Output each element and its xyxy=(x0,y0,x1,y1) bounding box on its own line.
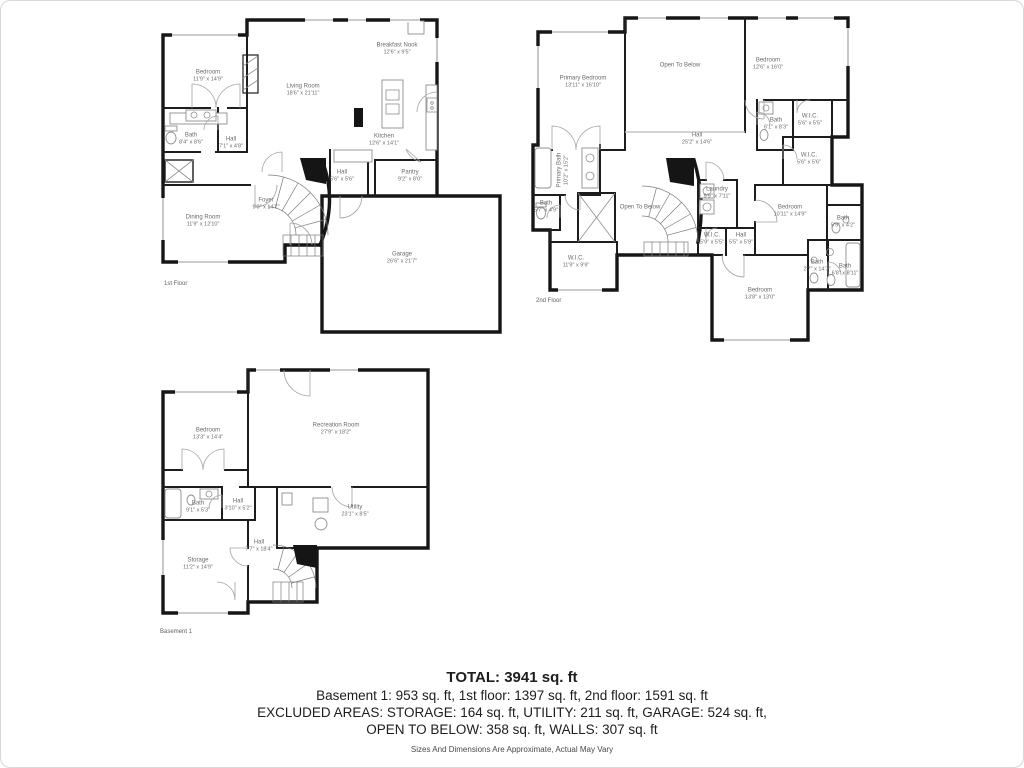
room-label-breakfast-nook: Breakfast Nook 12'6" x 9'5" xyxy=(376,42,417,56)
room-label-living-room: Living Room 18'6" x 21'11" xyxy=(286,83,319,97)
room-name: Bath xyxy=(832,263,859,270)
room-dims: 9'1" x 5'3" xyxy=(186,507,210,514)
room-name: Bedroom xyxy=(193,427,223,434)
room-label-bath: Bath 8'4" x 8'6" xyxy=(179,132,203,146)
room-label-recreation-room: Recreation Room 27'9" x 18'2" xyxy=(313,422,360,436)
room-name: Dining Room xyxy=(186,214,221,221)
floor-plans-drawing xyxy=(0,0,1024,768)
room-label-dining-room: Dining Room 11'9" x 12'10" xyxy=(186,214,221,228)
room-label-bath: Bath 5'9" x 4'2" xyxy=(831,215,855,229)
room-name: Bath xyxy=(803,259,830,266)
room-label-bedroom: Bedroom 13'8" x 13'0" xyxy=(745,287,775,301)
room-label-bedroom: Bedroom 13'3" x 14'4" xyxy=(193,427,223,441)
room-name: W.I.C. xyxy=(700,232,724,239)
room-label-wic: W.I.C. 5'9" x 5'5" xyxy=(700,232,724,246)
room-dims: 2'7" x 14'7" xyxy=(803,266,830,273)
room-label-bath: Bath 2'7" x 14'7" xyxy=(803,259,830,273)
room-dims: 3'10" x 5'2" xyxy=(224,505,251,512)
room-label-wic: W.I.C. 5'6" x 5'6" xyxy=(797,152,821,166)
floor-areas-text: Basement 1: 953 sq. ft, 1st floor: 1397 … xyxy=(0,688,1024,703)
room-dims: 6'8" x 8'11" xyxy=(832,270,859,277)
room-name: Garage xyxy=(387,251,417,258)
room-dims: 8'4" x 8'6" xyxy=(179,139,203,146)
room-name: Bath xyxy=(186,500,210,507)
room-dims: 26'6" x 21'7" xyxy=(387,258,417,265)
room-label-open-to-below: Open To Below xyxy=(660,63,701,70)
room-name: W.I.C. xyxy=(563,255,590,262)
room-name: W.I.C. xyxy=(797,152,821,159)
room-dims: 13'3" x 14'4" xyxy=(193,434,223,441)
total-area-text: TOTAL: 3941 sq. ft xyxy=(0,669,1024,686)
room-dims: 12'6" x 16'0" xyxy=(753,64,783,71)
room-name: Bath xyxy=(534,200,558,207)
room-name: Open To Below xyxy=(620,205,661,212)
room-label-bedroom: Bedroom 12'6" x 16'0" xyxy=(753,57,783,71)
room-name: Pantry xyxy=(398,169,422,176)
room-name: Recreation Room xyxy=(313,422,360,429)
room-label-utility: Utility 23'1" x 8'5" xyxy=(341,504,368,518)
room-label-wic: W.I.C. 5'6" x 5'5" xyxy=(798,113,822,127)
room-label-garage: Garage 26'6" x 21'7" xyxy=(387,251,417,265)
room-name: Hall xyxy=(245,539,272,546)
room-name: Bath xyxy=(179,132,203,139)
room-dims: 5'6" x 5'6" xyxy=(330,176,354,183)
room-label-bedroom: Bedroom 10'11" x 14'9" xyxy=(774,204,807,218)
room-dims: 25'2" x 14'6" xyxy=(682,139,712,146)
room-dims: 5'7" x 4'9" xyxy=(534,207,558,214)
room-dims: 7'7" x 18'4" xyxy=(245,546,272,553)
room-dims: 18'6" x 21'11" xyxy=(286,90,319,97)
room-name: Hall xyxy=(219,136,243,143)
room-dims: 6'1" x 8'3" xyxy=(764,124,788,131)
room-label-storage: Storage 11'2" x 14'9" xyxy=(183,557,213,571)
room-dims: 10'2" x 15'2" xyxy=(563,153,570,188)
room-name: Foyer xyxy=(252,197,279,204)
room-dims: 11'9" x 14'9" xyxy=(193,76,223,83)
room-label-bedroom: Bedroom 11'9" x 14'9" xyxy=(193,69,223,83)
floor-plan-sheet: Bedroom 11'9" x 14'9" Bath 8'4" x 8'6" H… xyxy=(0,0,1024,768)
room-dims: 12'6" x 14'1" xyxy=(369,140,399,147)
room-dims: 5'9" x 5'5" xyxy=(700,239,724,246)
room-label-foyer: Foyer 9'0" x 14'7" xyxy=(252,197,279,211)
floor-caption-basement: Basement 1 xyxy=(160,629,192,635)
room-name: Bath xyxy=(764,117,788,124)
room-label-bath: Bath 6'1" x 8'3" xyxy=(764,117,788,131)
room-label-kitchen: Kitchen 12'6" x 14'1" xyxy=(369,133,399,147)
room-name: Utility xyxy=(341,504,368,511)
room-dims: 13'8" x 13'0" xyxy=(745,294,775,301)
room-label-hall: Hall 7'7" x 18'4" xyxy=(245,539,272,553)
room-label-wic: W.I.C. 11'9" x 9'9" xyxy=(563,255,590,269)
room-name: Laundry xyxy=(704,186,731,193)
room-name: Hall xyxy=(224,498,251,505)
room-name: Kitchen xyxy=(369,133,399,140)
room-name: W.I.C. xyxy=(798,113,822,120)
floor-caption-1st: 1st Floor xyxy=(164,281,187,287)
room-label-bath: Bath 6'8" x 8'11" xyxy=(832,263,859,277)
room-name: Bedroom xyxy=(774,204,807,211)
room-label-bath: Bath 9'1" x 5'3" xyxy=(186,500,210,514)
room-name: Hall xyxy=(729,232,753,239)
room-dims: 11'9" x 9'9" xyxy=(563,262,590,269)
room-dims: 9'9" x 7'11" xyxy=(704,193,731,200)
room-dims: 23'1" x 8'5" xyxy=(341,511,368,518)
disclaimer-text: Sizes And Dimensions Are Approximate, Ac… xyxy=(0,745,1024,754)
excluded-areas-text-line1: EXCLUDED AREAS: STORAGE: 164 sq. ft, UTI… xyxy=(0,705,1024,720)
room-dims: 27'9" x 18'2" xyxy=(313,429,360,436)
room-label-hall: Hall 5'5" x 5'9" xyxy=(729,232,753,246)
room-dims: 5'6" x 5'5" xyxy=(798,120,822,127)
room-dims: 12'6" x 9'5" xyxy=(376,49,417,56)
room-name: Primary Bedroom xyxy=(560,75,607,82)
room-label-primary-bedroom: Primary Bedroom 13'11" x 16'10" xyxy=(560,75,607,89)
room-name: Bath xyxy=(831,215,855,222)
room-name: Hall xyxy=(330,169,354,176)
room-name: Bedroom xyxy=(753,57,783,64)
room-dims: 11'9" x 12'10" xyxy=(186,221,221,228)
room-dims: 10'11" x 14'9" xyxy=(774,211,807,218)
room-name: Breakfast Nook xyxy=(376,42,417,49)
room-name: Hall xyxy=(682,132,712,139)
room-name: Open To Below xyxy=(660,63,701,70)
excluded-areas-text-line2: OPEN TO BELOW: 358 sq. ft, WALLS: 307 sq… xyxy=(0,722,1024,737)
room-dims: 7'1" x 4'8" xyxy=(219,143,243,150)
room-label-hall: Hall 5'6" x 5'6" xyxy=(330,169,354,183)
room-label-hall: Hall 7'1" x 4'8" xyxy=(219,136,243,150)
room-name: Bedroom xyxy=(193,69,223,76)
room-label-open-to-below: Open To Below xyxy=(620,205,661,212)
floor-caption-2nd: 2nd Floor xyxy=(536,298,561,304)
room-dims: 9'2" x 8'0" xyxy=(398,176,422,183)
room-name: Living Room xyxy=(286,83,319,90)
room-dims: 11'2" x 14'9" xyxy=(183,564,213,571)
room-name: Bedroom xyxy=(745,287,775,294)
room-label-primary-bath: Primary Bath 10'2" x 15'2" xyxy=(556,153,570,188)
room-dims: 9'0" x 14'7" xyxy=(252,204,279,211)
room-label-pantry: Pantry 9'2" x 8'0" xyxy=(398,169,422,183)
room-dims: 5'9" x 4'2" xyxy=(831,222,855,229)
room-dims: 5'6" x 5'6" xyxy=(797,159,821,166)
room-name: Primary Bath xyxy=(556,153,563,188)
basement-plan xyxy=(163,370,428,613)
room-name: Storage xyxy=(183,557,213,564)
room-label-bath: Bath 5'7" x 4'9" xyxy=(534,200,558,214)
room-label-hall: Hall 3'10" x 5'2" xyxy=(224,498,251,512)
room-dims: 13'11" x 16'10" xyxy=(560,82,607,89)
room-label-laundry: Laundry 9'9" x 7'11" xyxy=(704,186,731,200)
room-dims: 5'5" x 5'9" xyxy=(729,239,753,246)
room-label-hall: Hall 25'2" x 14'6" xyxy=(682,132,712,146)
